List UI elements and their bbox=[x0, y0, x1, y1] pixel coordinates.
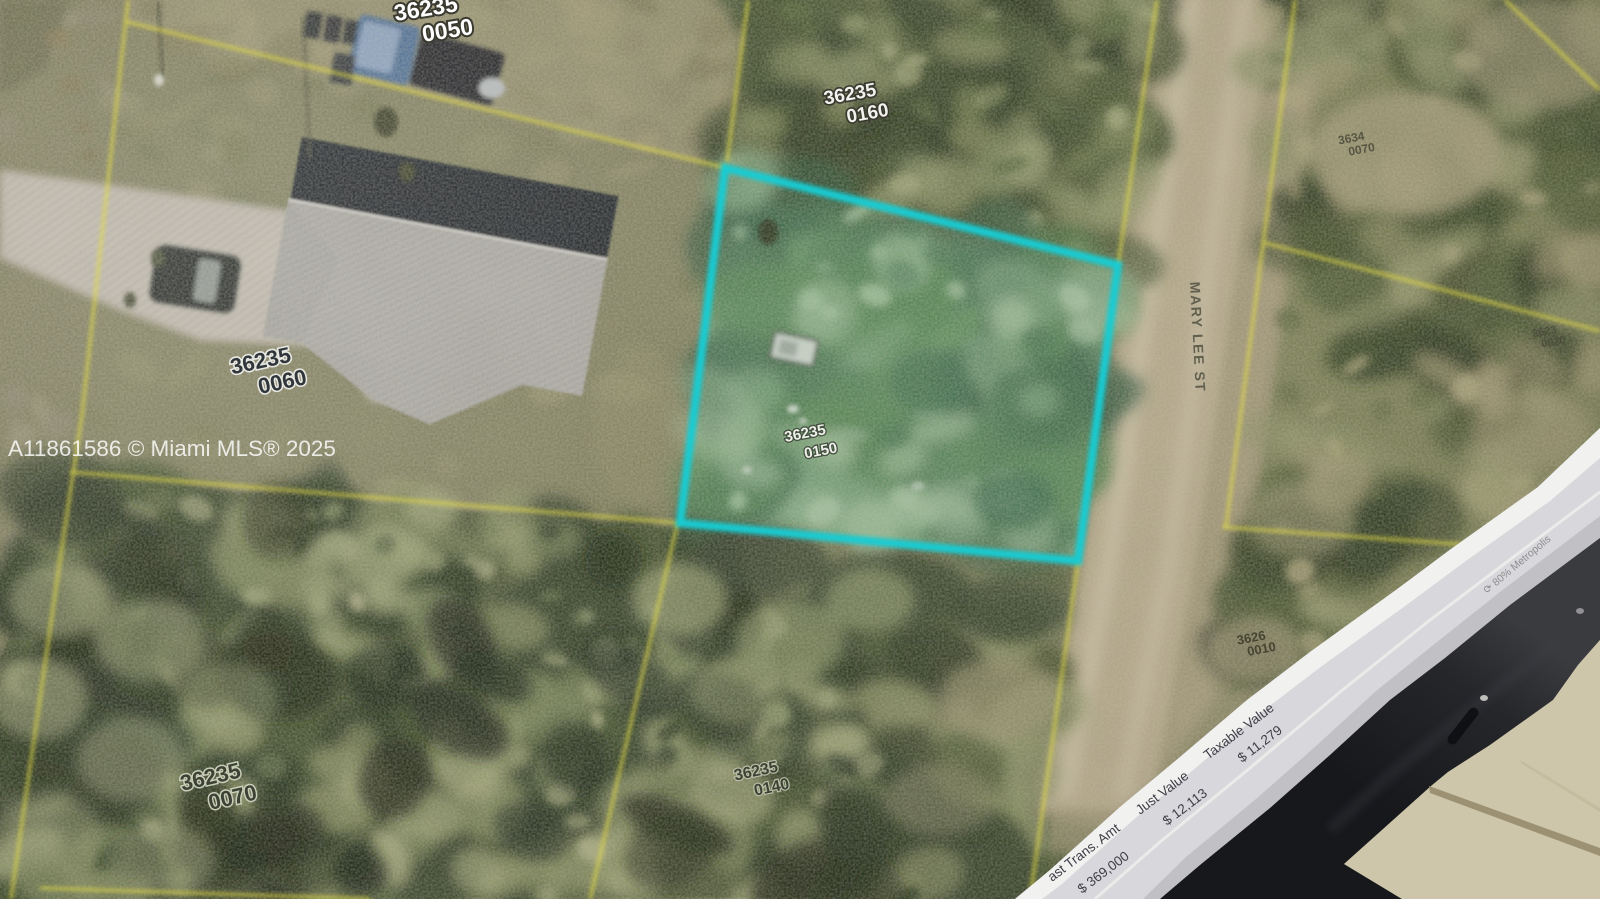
svg-text:A11861586 © Miami MLS® 2025: A11861586 © Miami MLS® 2025 bbox=[8, 436, 336, 461]
